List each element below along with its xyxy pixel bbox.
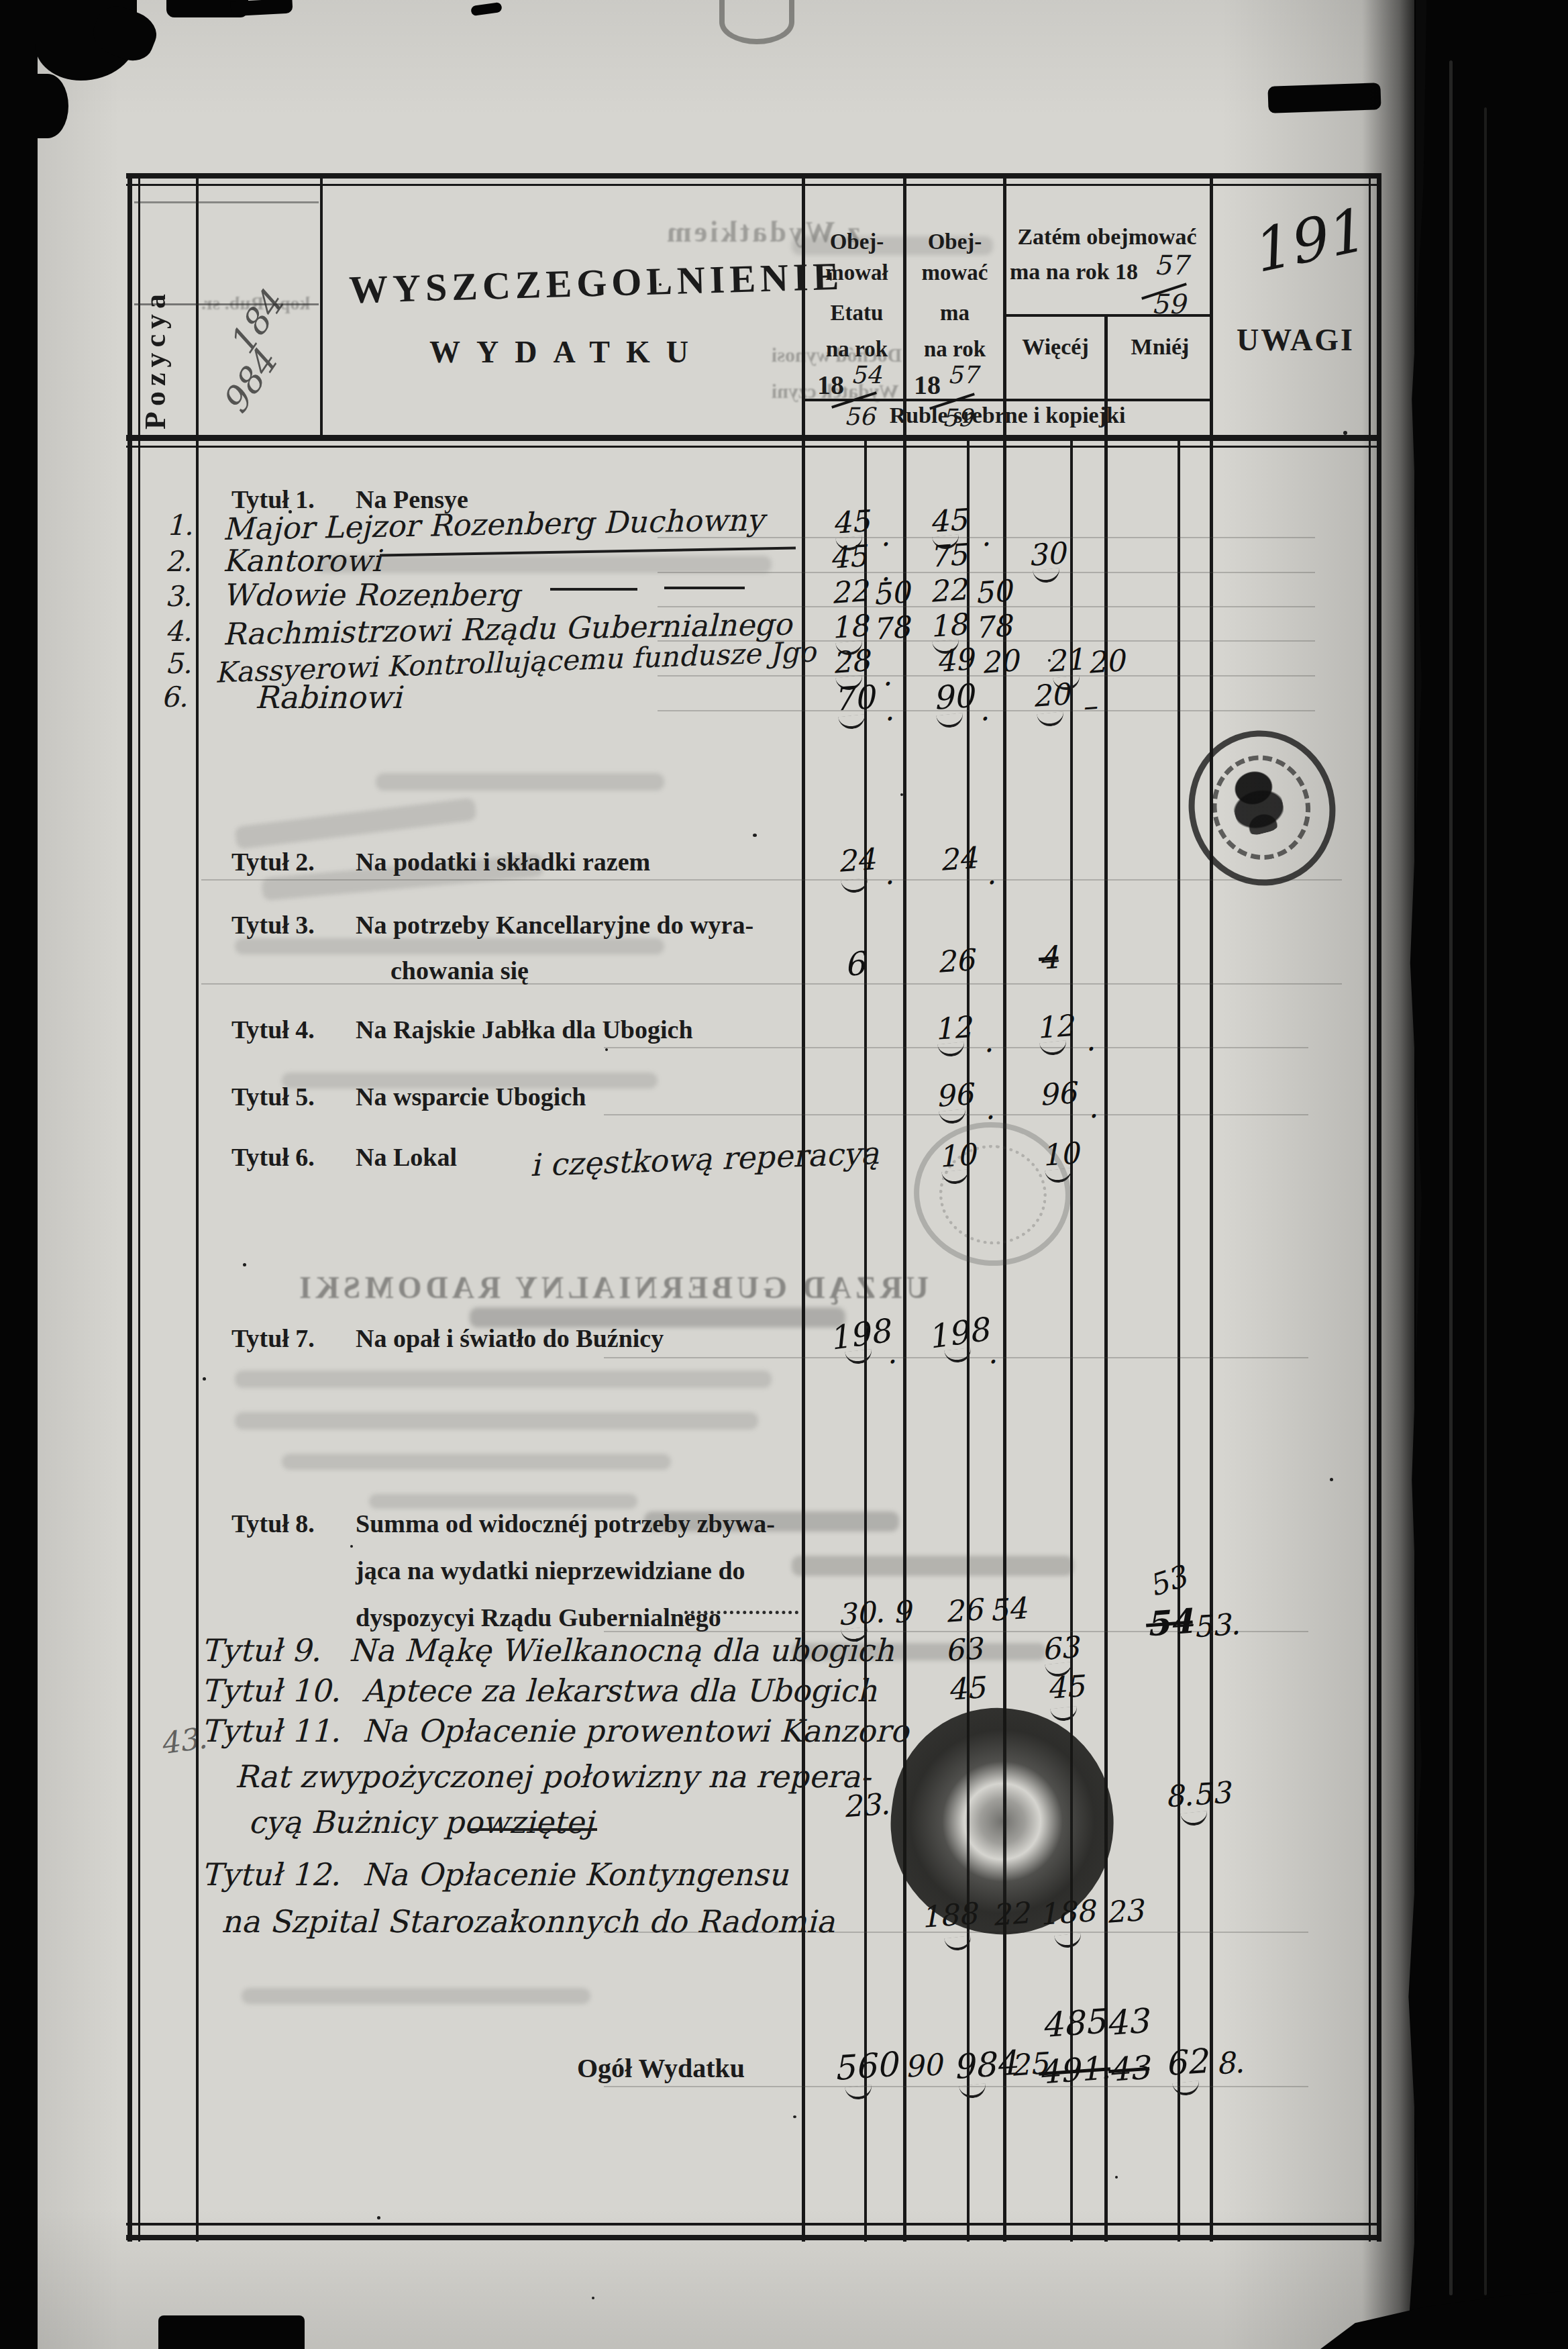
t11-line1: Na Opłacenie prowentowi Kanzoro	[362, 1713, 908, 1749]
pozycya-bleed-line-2	[134, 201, 319, 203]
t4-label: Na Rajskie Jabłka dla Ubogich	[356, 1015, 693, 1044]
t3-line1: Na potrzeby Kancellaryjne do wyra-	[356, 910, 753, 940]
col-ma-header-l1: Obej-	[910, 230, 1000, 254]
cell-ma-rub: 24	[938, 840, 978, 877]
t5-label: Na wsparcie Ubogich	[356, 1082, 586, 1111]
cell-etat-rub: 45	[828, 538, 868, 575]
cell-etat-rub: 30.	[836, 1595, 885, 1632]
col-ma-year-top: 57	[947, 361, 978, 389]
speck	[1330, 1478, 1333, 1481]
t7-title: Tytuł 7.	[231, 1323, 315, 1353]
total-ma-rub: 984	[951, 2044, 1018, 2087]
total-etat-kop: 90	[903, 2047, 943, 2084]
t8-dot-leader	[684, 1611, 798, 1614]
page-stack-edge-2	[1484, 107, 1487, 2295]
bleed-bar	[792, 1556, 1074, 1576]
film-blob-topleft-3	[27, 74, 68, 138]
mniej-value: 8.53	[1163, 1775, 1231, 1814]
row-no: 1.	[166, 509, 193, 542]
col-ma-header-l4: na rok	[910, 337, 1000, 362]
band-top-line	[802, 399, 1213, 401]
cell-etat-rub: 12	[933, 1009, 972, 1046]
speck	[1115, 2176, 1118, 2179]
speck	[377, 2216, 380, 2219]
bleed-bar	[282, 1454, 671, 1470]
total-mniej-kop: 8.	[1214, 2045, 1245, 2081]
speck	[203, 1377, 206, 1381]
stamp-inner-ring	[935, 1140, 1052, 1250]
t8-line3: dyspozycyi Rządu Gubernialnego	[356, 1603, 721, 1632]
col-etat-header-l1: Obej-	[813, 230, 900, 254]
cell-ma-rub: 45	[1045, 1668, 1085, 1705]
col-ma-header-year: 18	[914, 369, 941, 401]
cell-etat-rub: 63	[943, 1631, 983, 1668]
t6-title: Tytuł 6.	[231, 1142, 315, 1172]
row3-dash	[550, 588, 637, 591]
scanned-ledger-page: z Wydatkiem Dochód wynosi Wydatek czyni …	[0, 0, 1568, 2349]
speck	[243, 1263, 246, 1266]
cell-wiecej-rub: 30	[1027, 536, 1066, 572]
bleed-bar	[376, 773, 664, 791]
t9-label: Na Mąkę Wielkanocną dla ubogich	[349, 1632, 894, 1668]
row-no: 6.	[161, 681, 188, 713]
cell-wiecej-kop: –	[1080, 688, 1098, 723]
uwagi-header: UWAGI	[1214, 322, 1377, 358]
col-mniej-header: Mniéj	[1110, 334, 1210, 360]
cell-wiecej-kop: 20	[1086, 643, 1125, 680]
speck	[431, 605, 433, 608]
t12-title: Tytuł 12.	[201, 1856, 340, 1893]
t9-title: Tytuł 9.	[201, 1632, 321, 1668]
col-etat-header-l3: Etatu	[813, 301, 900, 326]
speck	[753, 834, 757, 837]
cell-etat-rub: 96	[934, 1077, 974, 1113]
speck	[1182, 350, 1186, 353]
t10-title: Tytuł 10.	[201, 1672, 340, 1709]
header-bottom-line-thin	[126, 446, 1381, 448]
t12-line1: Na Opłacenie Kontyngensu	[362, 1856, 788, 1893]
film-edge-left	[0, 0, 38, 2349]
row-guide	[201, 983, 1342, 985]
speck	[1048, 659, 1051, 662]
t11-dash	[470, 1828, 597, 1831]
cell-ma-rub: 49	[935, 642, 974, 679]
t11-line3: cyą Bużnicy powziętej	[248, 1804, 594, 1840]
bleed-bar	[315, 556, 772, 573]
col-ma-header-l3: ma	[910, 301, 1000, 326]
col-etat-year-top: 54	[851, 361, 882, 389]
row-no: 3.	[165, 580, 192, 613]
col-line-wiecej-kop	[1070, 438, 1073, 2242]
col-line-pozycya	[196, 173, 199, 2242]
total-wiecej-old-rub: 491.	[1037, 2048, 1112, 2091]
cell-etat-rub: 23.	[841, 1787, 890, 1824]
t11-title: Tytuł 11.	[201, 1713, 340, 1749]
cell-etat-rub: 45	[831, 503, 870, 540]
speck	[289, 510, 292, 513]
speck	[659, 283, 662, 286]
t7-label: Na opał i światło do Buźnicy	[356, 1323, 664, 1353]
cell-ma-rub: 26	[943, 1592, 983, 1629]
cell-ma-kop: 20	[980, 643, 1019, 680]
cell-etat-rub: 70	[832, 678, 876, 718]
col-etat-header-l2: mował	[813, 260, 900, 285]
cell-wiecej-rub: 21	[1045, 642, 1085, 679]
film-bar-bottomleft	[158, 2315, 305, 2349]
cell-etat-kop: 50	[871, 574, 910, 611]
cell-ma-rub: 22	[928, 572, 968, 609]
paperclip-ring-mark	[719, 0, 794, 44]
cell-ma-kop: 78	[973, 608, 1012, 645]
col-zatem-year-bottom: 59	[1151, 289, 1186, 319]
mniej-kop: 53.	[1192, 1607, 1241, 1644]
cell-etat-rub: 22	[829, 573, 869, 610]
speck	[605, 1048, 608, 1051]
t11-line2: Rat zwypożyczonej połowizny na repera-	[235, 1758, 870, 1795]
page-stack-edge-1	[1449, 60, 1453, 2295]
header-bottom-line	[126, 435, 1381, 441]
page-title-line2: WYDATKU	[429, 334, 704, 370]
cell-etat-rub: 28	[831, 643, 870, 680]
t8-line2: jąca na wydatki nieprzewidziane do	[356, 1556, 745, 1585]
bleed-bar	[235, 1412, 758, 1430]
col-etat-header-year: 18	[817, 369, 844, 401]
speck	[592, 2297, 594, 2299]
total-mniej-rub: 62	[1163, 2042, 1209, 2083]
cell-ma-rub: 12	[1035, 1008, 1074, 1045]
col-ma-header-l2: mować	[910, 260, 1000, 285]
col-etat-header-l4: na rok	[813, 337, 900, 362]
t3-line2: chowania się	[390, 956, 529, 985]
ruble-band-label: Ruble srebrne i kopiejki	[802, 403, 1213, 428]
total-wiecej-old-kop: 43	[1107, 2048, 1151, 2089]
speck	[350, 1545, 353, 1548]
table-border-left-inner	[138, 173, 140, 2242]
cell-ma-kop: 23	[1104, 1893, 1144, 1930]
cell-ma-rub: 63	[1040, 1630, 1080, 1666]
t5-title: Tytuł 5.	[231, 1082, 315, 1111]
bleed-bar	[242, 1988, 590, 2004]
cell-ma-rub: 18	[928, 607, 968, 644]
row-label: Rabinowi	[255, 679, 402, 715]
cell-ma-rub: 26	[935, 942, 975, 979]
t8-line1: Summa od widocznéj potrzeby zbywa-	[356, 1509, 775, 1538]
col-wiecej-header: Więcéj	[1006, 334, 1104, 360]
t6-label: Na Lokal	[356, 1142, 457, 1172]
table-border-bottom-inner	[126, 2223, 1381, 2226]
cell-ma-kop: 50	[973, 573, 1012, 610]
row-no: 2.	[165, 545, 192, 578]
total-wiecej-new-rub: 485	[1040, 2002, 1106, 2046]
speck	[793, 2115, 796, 2118]
cell-ma-rub: 45	[928, 502, 968, 539]
total-etat-rub: 560	[832, 2045, 898, 2089]
t2-title: Tytuł 2.	[231, 847, 315, 877]
cell-etat-rub: 6	[843, 944, 866, 983]
row-label: Kantorowi	[223, 543, 381, 579]
row-no: 5.	[165, 647, 192, 680]
table-border-top-inner	[126, 184, 1381, 186]
cell-ma-rub: 96	[1037, 1075, 1077, 1112]
row-no: 4.	[165, 615, 192, 648]
cell-etat-kop: 9	[891, 1594, 912, 1630]
t2-label: Na podatki i składki razem	[356, 847, 650, 877]
col-zatem-header-l2: ma na rok 18	[1010, 259, 1138, 285]
cell-etat-rub: 24	[836, 842, 876, 879]
col-zatem-year-top: 57	[1154, 250, 1188, 281]
col-line-mniej-kop	[1178, 438, 1180, 2242]
bleed-bar	[235, 1370, 772, 1388]
bleed-bar	[235, 938, 664, 954]
row-guide	[201, 879, 1342, 881]
pozycya-column-label: Pozycya	[138, 208, 172, 430]
t4-title: Tytuł 4.	[231, 1015, 315, 1044]
cell-ma-rub: 90	[931, 677, 975, 717]
bleed-bar	[369, 1494, 637, 1509]
row-label: Wdowie Rozenberg	[223, 577, 519, 613]
speck	[1343, 431, 1347, 435]
speck	[511, 1914, 515, 1917]
cell-etat-kop: 78	[871, 609, 910, 646]
cell-ma-kop: 54	[988, 1591, 1027, 1628]
cell-etat-rub: 45	[946, 1670, 986, 1707]
cell-wiecej-rub: 20	[1031, 677, 1070, 713]
bleed-text-urzad-gubernialny: URZĄD GUBERNIALNY RADOMSKI	[295, 1270, 929, 1305]
col-line-header-sub	[320, 173, 323, 439]
totals-label: Ogół Wydatku	[577, 2052, 745, 2084]
row3-dash2	[664, 587, 745, 589]
mniej-crossed-old: 54	[1145, 1601, 1194, 1644]
table-border-top	[126, 173, 1381, 179]
total-wiecej-new-kop: 43	[1104, 2001, 1150, 2043]
t10-label: Aptece za lekarstwa dla Ubogich	[362, 1672, 877, 1709]
col-zatem-header-l1: Zatém obejmować	[1006, 224, 1208, 250]
table-border-left	[127, 173, 132, 2242]
cell-ma-rub: 75	[928, 537, 968, 574]
t3-title: Tytuł 3.	[231, 910, 315, 940]
page-curl-shadow	[1362, 0, 1416, 2349]
table-border-bottom	[126, 2235, 1381, 2240]
col-line-mniej-left	[1104, 315, 1108, 2242]
t8-title: Tytuł 8.	[231, 1509, 315, 1538]
cell-wiecej-crossed: 4	[1037, 939, 1059, 977]
t12-line2: na Szpital Starozakonnych do Radomia	[221, 1903, 835, 1940]
speck	[900, 793, 903, 796]
row-guide	[658, 572, 1315, 573]
cell-etat-rub: 18	[829, 608, 869, 645]
